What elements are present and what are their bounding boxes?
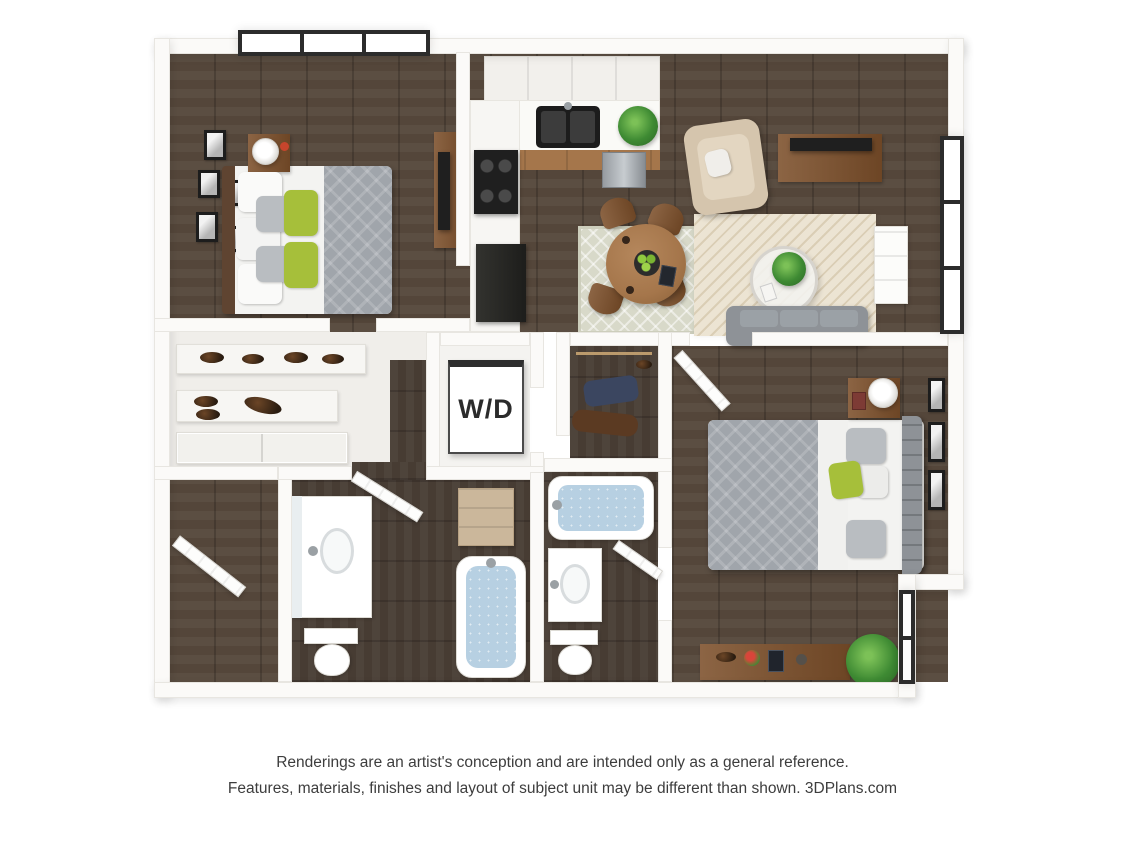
closet-sliding-doors <box>176 432 348 464</box>
refrigerator <box>476 244 526 322</box>
wall-art-frame <box>928 378 945 412</box>
wall-mid-laundry-top <box>440 332 530 346</box>
washer-dryer-unit: W/D <box>448 360 524 454</box>
shoes <box>636 360 652 369</box>
wall-exterior-bottom <box>154 682 916 698</box>
wall-laundry-right-upper <box>530 332 544 388</box>
shoes <box>200 352 224 363</box>
bath2-bathtub-water <box>558 485 644 531</box>
closet-hanging-rod <box>576 352 652 355</box>
green-accent-pillow <box>284 190 318 236</box>
cup <box>626 286 634 294</box>
table-lamp <box>252 138 279 165</box>
bedroom1-window <box>238 30 430 56</box>
sofa-cushion <box>820 310 858 327</box>
green-accent-pillow <box>828 460 865 500</box>
disclaimer-line-1: Renderings are an artist's conception an… <box>0 750 1125 776</box>
shoes <box>196 409 220 420</box>
disclaimer: Renderings are an artist's conception an… <box>0 750 1125 802</box>
book-on-nightstand <box>852 392 866 410</box>
bath1-faucet <box>308 546 318 556</box>
wall-bathroom2-top <box>544 458 672 472</box>
flower-vase <box>280 142 289 151</box>
sofa-cushion <box>740 310 778 327</box>
bath1-tub-faucet <box>486 558 496 568</box>
sink-faucet <box>564 102 572 110</box>
bath2-sink-basin <box>560 564 590 604</box>
cup <box>622 236 630 244</box>
coffee-table-plant <box>772 252 806 286</box>
flower-pot <box>744 650 760 666</box>
bath1-mirror <box>292 496 302 618</box>
potted-plant-bedroom2 <box>846 634 900 688</box>
floorplan-rendering: W/D <box>0 0 1125 844</box>
shoes <box>322 354 344 364</box>
wall-laundry-left <box>426 332 440 480</box>
dishwasher <box>602 152 646 188</box>
bath2-toilet-bowl <box>558 645 592 675</box>
shoes-on-desk <box>716 652 736 662</box>
patterned-duvet <box>708 420 818 570</box>
wall-art-frame <box>204 130 226 160</box>
shoes <box>242 354 264 364</box>
fruit-bowl <box>634 250 660 276</box>
wall-mid-closet-top <box>570 332 690 346</box>
wall-bedroom1-right <box>456 52 470 266</box>
wall-bedroom2-left-upper <box>658 332 672 548</box>
table-lamp-bedroom2 <box>868 378 898 408</box>
range-stove <box>474 150 518 214</box>
bedroom2-corner-window <box>899 590 915 684</box>
window-mullion <box>903 636 911 640</box>
side-table <box>874 226 908 304</box>
bath1-sink-basin <box>320 528 354 574</box>
counter-plant <box>618 106 658 146</box>
window-mullion <box>944 266 960 270</box>
bath2-faucet <box>550 580 559 589</box>
bath1-storage-cabinet <box>458 488 514 546</box>
gray-pillow <box>846 520 886 558</box>
wall-art-frame <box>196 212 218 242</box>
upper-cabinets <box>484 56 660 102</box>
bath2-toilet-tank <box>550 630 598 645</box>
window-mullion <box>944 200 960 204</box>
wall-bedroom2-top <box>752 332 948 346</box>
window-mullion <box>300 34 304 52</box>
green-accent-pillow <box>284 242 318 288</box>
tablet-on-desk <box>768 650 784 672</box>
wall-bathroom1-top <box>278 466 352 480</box>
tv-living <box>790 138 872 151</box>
wall-bathroom1-left <box>278 466 292 682</box>
wall-closet2-left <box>556 332 570 436</box>
desk-accessory <box>796 654 807 665</box>
apartment-floorplan: W/D <box>0 0 1125 844</box>
bath1-toilet-tank <box>304 628 358 644</box>
disclaimer-line-2: Features, materials, finishes and layout… <box>0 776 1125 802</box>
wall-art-frame <box>198 170 220 198</box>
washer-dryer-label: W/D <box>458 394 513 425</box>
tufted-headboard <box>902 416 922 574</box>
sofa-cushion <box>780 310 818 327</box>
sink-basin <box>570 111 595 143</box>
sink-basin <box>541 111 566 143</box>
shoes <box>194 396 218 407</box>
bath2-tub-faucet <box>552 500 562 510</box>
wall-bedroom1-bottom-left <box>154 318 330 332</box>
gray-duvet <box>324 166 392 314</box>
window-mullion <box>362 34 366 52</box>
wall-bedroom2-left-lower <box>658 620 672 682</box>
wall-closet-bottom <box>154 466 278 480</box>
wall-art-frame <box>928 422 945 462</box>
wall-exterior-left <box>154 38 170 698</box>
gray-pillow <box>846 428 886 464</box>
living-room-window <box>940 136 964 334</box>
bed-headboard <box>222 166 235 314</box>
bath1-toilet-bowl <box>314 644 350 676</box>
wall-bedroom1-bottom-right <box>376 318 470 332</box>
shoes <box>284 352 308 363</box>
wall-art-frame <box>928 470 945 510</box>
wall-laundry-bottom <box>426 466 544 480</box>
wall-bathrooms-divider <box>530 472 544 682</box>
tv <box>438 152 450 230</box>
bath1-bathtub-water <box>466 566 516 668</box>
